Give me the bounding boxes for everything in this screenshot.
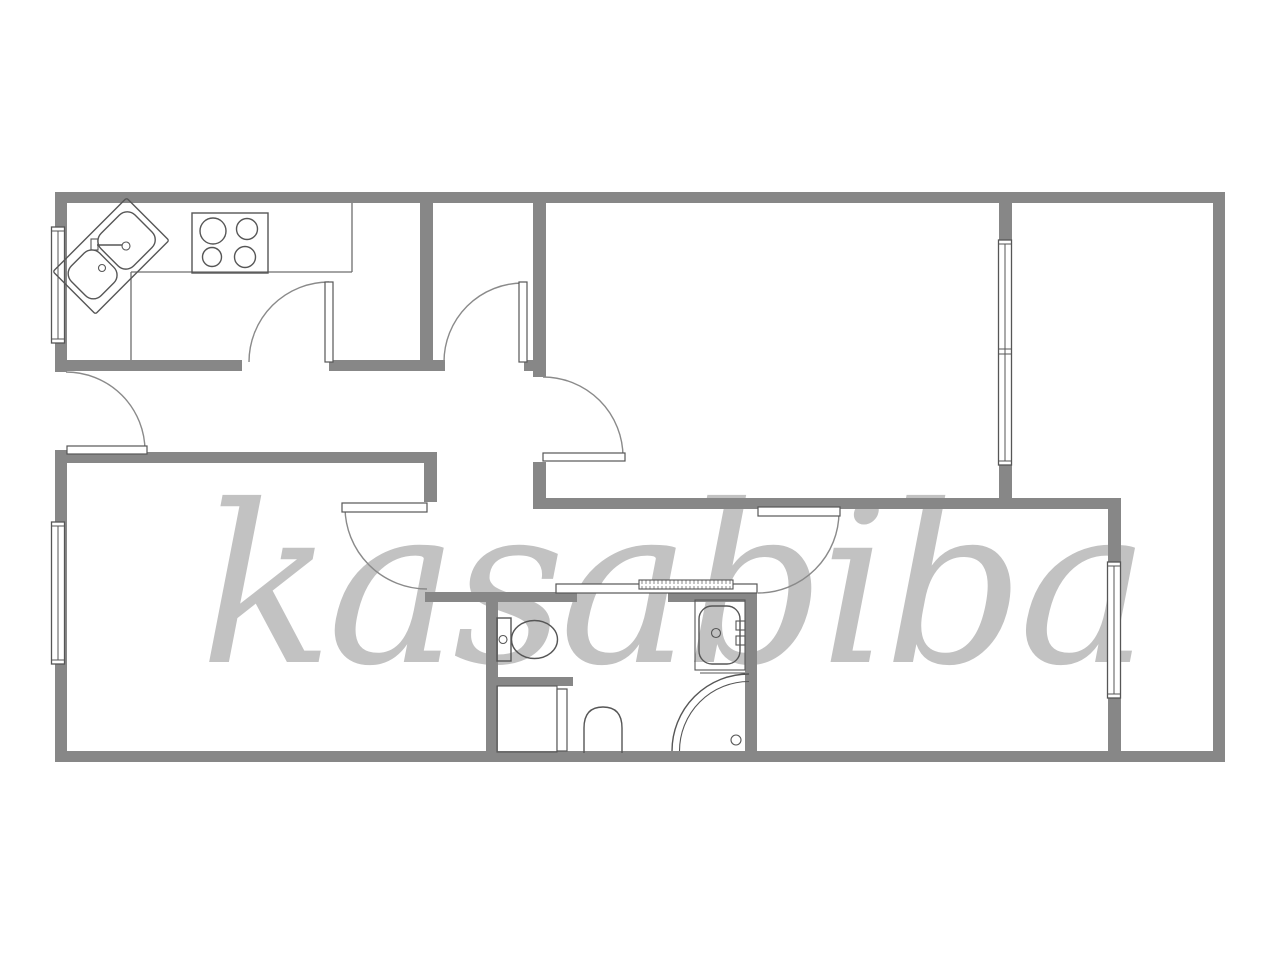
bathroom-sliding-door	[556, 580, 757, 593]
livingroom-window	[52, 522, 65, 664]
kitchen-door-swing-arc	[249, 282, 329, 362]
faucet-handle	[91, 239, 98, 250]
corner-sink-icon	[53, 198, 169, 314]
toilet-icon	[497, 618, 558, 661]
toilet-flush-button	[499, 636, 507, 644]
doors	[66, 282, 840, 593]
smallroom-door-swing-arc	[444, 283, 523, 362]
sliding-door-panel	[639, 580, 733, 589]
kitchen-counter-edge	[131, 203, 352, 360]
washbasin-icon	[695, 600, 745, 670]
wall-bathroom-right	[745, 592, 757, 762]
wall-bedroom-right-lower	[1108, 698, 1121, 752]
toprightroom-door-leaf	[543, 453, 625, 461]
toilet-bowl	[512, 621, 558, 659]
kitchen-door-leaf	[325, 282, 333, 362]
wall-partition-lower	[999, 465, 1012, 509]
closet-door-leaf	[557, 689, 567, 751]
wall-bottom	[55, 751, 1225, 762]
shower-outer-edge	[672, 674, 749, 751]
entry-door-leaf	[67, 446, 147, 454]
smallroom-door-leaf	[519, 282, 527, 362]
smallroom-door	[444, 282, 527, 362]
wall-top	[55, 192, 1225, 203]
bedroom-window	[1108, 562, 1121, 698]
corner-shower-icon	[672, 673, 749, 751]
entry-door-swing-arc	[66, 372, 145, 451]
shower-inner-edge	[680, 682, 750, 752]
bedroom-door	[758, 507, 840, 593]
kitchen-door	[249, 282, 333, 362]
bedroom-door-swing-arc	[758, 512, 839, 593]
toprightroom-door-swing-arc	[543, 377, 623, 457]
livingroom-door-leaf	[342, 503, 427, 512]
sink-drain	[99, 265, 106, 272]
livingroom-door	[342, 503, 427, 589]
bidet-icon	[584, 707, 622, 753]
wall-partition-upper	[999, 203, 1012, 240]
wall-bathroom-top-left	[425, 592, 577, 602]
closet-outline	[497, 686, 557, 752]
interior-glazing-window	[999, 240, 1012, 465]
toprightroom-door	[543, 377, 625, 461]
bedroom-door-leaf	[758, 507, 840, 516]
interior-walls	[55, 203, 1121, 762]
wall-kitchen-bottom-a	[58, 360, 242, 371]
entry-door	[66, 372, 147, 454]
outer-walls	[55, 192, 1225, 762]
kitchen-window	[52, 227, 65, 343]
floor-plan-drawing	[0, 0, 1280, 960]
washbasin-drain	[712, 629, 721, 638]
wall-right	[1213, 192, 1225, 762]
wall-closet-stub	[495, 677, 573, 686]
livingroom-door-swing-arc	[345, 507, 427, 589]
floor-plan-page: kasabiba	[0, 0, 1280, 960]
wall-kitchen-smallroom-divider	[420, 203, 433, 371]
faucet-spout	[122, 242, 130, 250]
wall-livingroom-right	[424, 452, 437, 502]
closet	[497, 686, 567, 752]
wall-bedroom-right-upper	[1108, 498, 1121, 562]
stove-icon	[192, 213, 268, 273]
bathroom-fixtures	[497, 600, 749, 753]
wall-hall-right-upper	[533, 203, 546, 377]
kitchen-fixtures	[53, 198, 352, 360]
shower-drain	[731, 735, 741, 745]
